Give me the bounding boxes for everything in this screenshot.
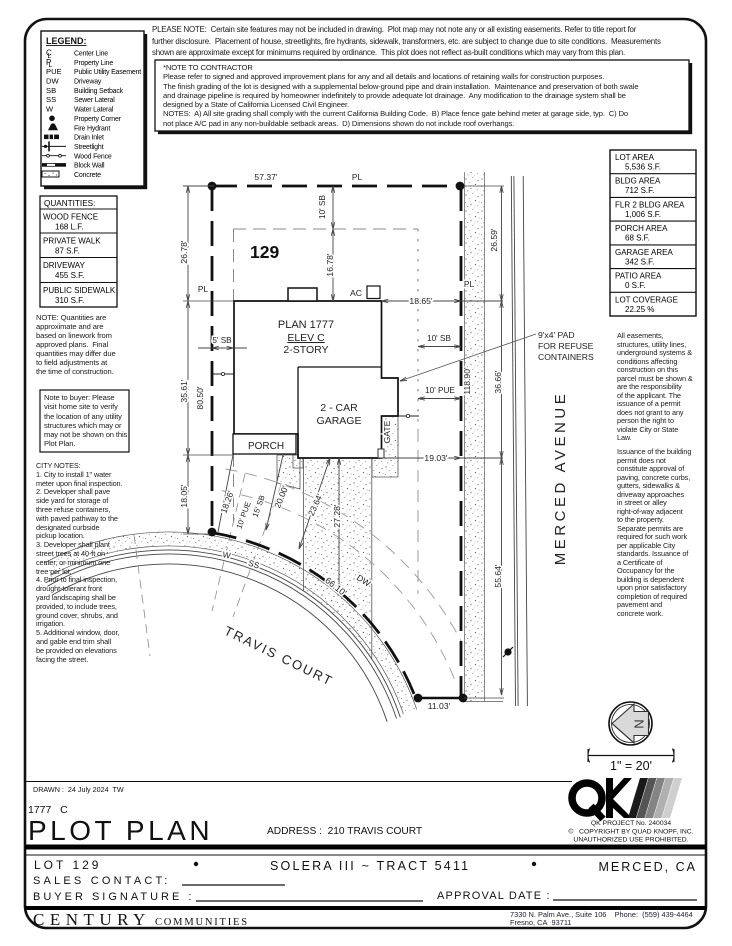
svg-text:26.59': 26.59': [489, 228, 499, 252]
svg-text:PLAN 1777: PLAN 1777: [278, 319, 334, 331]
svg-text:W: W: [46, 105, 54, 114]
svg-text:LOT COVERAGE: LOT COVERAGE: [615, 295, 678, 304]
svg-text:1,006 S.F.: 1,006 S.F.: [625, 210, 661, 219]
svg-text:16.78': 16.78': [325, 253, 335, 277]
svg-text:18.05': 18.05': [179, 484, 189, 508]
svg-text:PLOT PLAN: PLOT PLAN: [28, 815, 213, 846]
svg-text:19.03': 19.03': [424, 453, 448, 463]
svg-text:GATE: GATE: [382, 420, 392, 443]
svg-text:0 S.F.: 0 S.F.: [625, 281, 645, 290]
svg-text:DRIVEWAY: DRIVEWAY: [43, 261, 85, 270]
svg-text:FLR 2 BLDG AREA: FLR 2 BLDG AREA: [615, 200, 685, 209]
svg-text:PORCH AREA: PORCH AREA: [615, 224, 668, 233]
svg-text:UNAUTHORIZED USE PROHIBITED.: UNAUTHORIZED USE PROHIBITED.: [573, 837, 688, 844]
svg-text:36.66': 36.66': [493, 370, 503, 394]
svg-text:Water Lateral: Water Lateral: [74, 107, 114, 114]
svg-text:QUANTITIES:: QUANTITIES:: [44, 199, 95, 208]
svg-text:26.78': 26.78': [179, 240, 189, 264]
svg-text:PATIO AREA: PATIO AREA: [615, 272, 662, 281]
svg-text:80.50': 80.50': [195, 386, 205, 410]
svg-text:Building Setback: Building Setback: [74, 88, 124, 95]
svg-text:Center Line: Center Line: [74, 51, 108, 58]
svg-text:SALES CONTACT:: SALES CONTACT:: [33, 875, 171, 887]
svg-text:9'x4' PAD: 9'x4' PAD: [538, 330, 575, 340]
svg-text:22.25 %: 22.25 %: [625, 305, 654, 314]
svg-text:35.61': 35.61': [179, 379, 189, 403]
svg-text:1" = 20': 1" = 20': [610, 759, 652, 773]
svg-text:310 S.F.: 310 S.F.: [55, 296, 84, 305]
svg-text:PORCH: PORCH: [248, 441, 284, 452]
svg-text:Fire Hydrant: Fire Hydrant: [74, 125, 110, 132]
svg-text:20.00': 20.00': [272, 484, 290, 510]
svg-text:PL: PL: [464, 279, 475, 289]
svg-text:COMMUNITIES: COMMUNITIES: [155, 917, 249, 928]
svg-text:15' SB: 15' SB: [251, 494, 267, 518]
svg-text:AC: AC: [350, 288, 362, 298]
svg-text:342 S.F.: 342 S.F.: [625, 257, 654, 266]
svg-text:PL: PL: [198, 284, 209, 294]
svg-text:55.64': 55.64': [493, 564, 503, 588]
svg-text:ELEV C: ELEV C: [287, 332, 325, 344]
svg-text:ADDRESS : 210 TRAVIS COURT: ADDRESS : 210 TRAVIS COURT: [267, 826, 422, 837]
svg-text:5' SB: 5' SB: [212, 336, 232, 345]
svg-text:DW: DW: [46, 77, 59, 86]
svg-text:168 L.F.: 168 L.F.: [55, 223, 83, 232]
svg-text:2 - CAR: 2 - CAR: [320, 402, 358, 414]
svg-text:10' SB: 10' SB: [427, 334, 451, 343]
svg-text:WOOD FENCE: WOOD FENCE: [43, 213, 98, 222]
svg-text:SS: SS: [46, 95, 56, 104]
svg-text:APPROVAL DATE :: APPROVAL DATE :: [437, 890, 551, 902]
svg-text:PUE: PUE: [46, 67, 62, 76]
svg-text:LOT 129: LOT 129: [34, 858, 101, 872]
svg-text:455 S.F.: 455 S.F.: [55, 271, 84, 280]
svg-text:BUYER SIGNATURE :: BUYER SIGNATURE :: [33, 891, 194, 903]
svg-text:18.65': 18.65': [409, 296, 433, 306]
svg-text:712 S.F.: 712 S.F.: [625, 186, 654, 195]
svg-text:TRAVIS COURT: TRAVIS COURT: [222, 623, 336, 689]
svg-text:10' SB: 10' SB: [318, 195, 327, 219]
svg-text:GARAGE: GARAGE: [317, 415, 362, 427]
svg-text:BLDG AREA: BLDG AREA: [615, 177, 661, 186]
svg-text:Wood Fence: Wood Fence: [74, 153, 112, 160]
svg-text:SS: SS: [247, 558, 261, 571]
svg-text:MERCED AVENUE: MERCED AVENUE: [552, 391, 569, 565]
svg-text:57.37': 57.37': [254, 172, 278, 182]
svg-text:W: W: [222, 549, 232, 560]
svg-text:DRAWN : 24 July 2024 TW: DRAWN : 24 July 2024 TW: [33, 785, 124, 794]
svg-text:MERCED, CA: MERCED, CA: [599, 860, 697, 874]
svg-text:CONTAINERS: CONTAINERS: [538, 352, 594, 362]
svg-text:Streetlight: Streetlight: [74, 144, 104, 151]
svg-text:SB: SB: [46, 86, 56, 95]
svg-text:87 S.F.: 87 S.F.: [55, 247, 80, 256]
svg-text:11.03': 11.03': [428, 701, 451, 711]
svg-text:Block Wall: Block Wall: [74, 163, 105, 170]
svg-text:Fresno, CA 93711: Fresno, CA 93711: [510, 918, 572, 927]
svg-text:10' PUE: 10' PUE: [425, 386, 455, 395]
svg-text:N: N: [631, 719, 646, 728]
svg-text:Concrete: Concrete: [74, 172, 101, 179]
svg-text:27.28': 27.28': [332, 504, 342, 528]
svg-text:Sewer Lateral: Sewer Lateral: [74, 97, 115, 104]
svg-text:LOT AREA: LOT AREA: [615, 153, 655, 162]
svg-text:129: 129: [250, 242, 279, 262]
svg-text:PL: PL: [352, 172, 363, 182]
svg-text:Drain Inlet: Drain Inlet: [74, 135, 104, 142]
svg-text:Public Utility Easement: Public Utility Easement: [74, 69, 141, 76]
svg-text:LEGEND:: LEGEND:: [46, 36, 87, 46]
svg-text:SOLERA III ~ TRACT 5411: SOLERA III ~ TRACT 5411: [270, 859, 470, 873]
svg-text:118.90': 118.90': [462, 367, 472, 395]
svg-text:PRIVATE WALK: PRIVATE WALK: [43, 237, 101, 246]
svg-text:© COPYRIGHT BY QUAD KNOPF, I: © COPYRIGHT BY QUAD KNOPF, INC.: [568, 828, 693, 836]
svg-text:Driveway: Driveway: [74, 79, 102, 86]
svg-text:68 S.F.: 68 S.F.: [625, 234, 650, 243]
svg-text:FOR REFUSE: FOR REFUSE: [538, 341, 594, 351]
svg-text:CENTURY: CENTURY: [33, 910, 151, 929]
svg-text:PUBLIC SIDEWALK: PUBLIC SIDEWALK: [43, 286, 116, 295]
svg-text:QK PROJECT No. 240034: QK PROJECT No. 240034: [591, 820, 672, 827]
svg-text:Property Line: Property Line: [74, 60, 113, 67]
svg-text:5,536 S.F.: 5,536 S.F.: [625, 163, 661, 172]
svg-text:2-STORY: 2-STORY: [283, 344, 328, 356]
svg-text:GARAGE AREA: GARAGE AREA: [615, 248, 673, 257]
svg-text:Property Corner: Property Corner: [74, 116, 122, 123]
